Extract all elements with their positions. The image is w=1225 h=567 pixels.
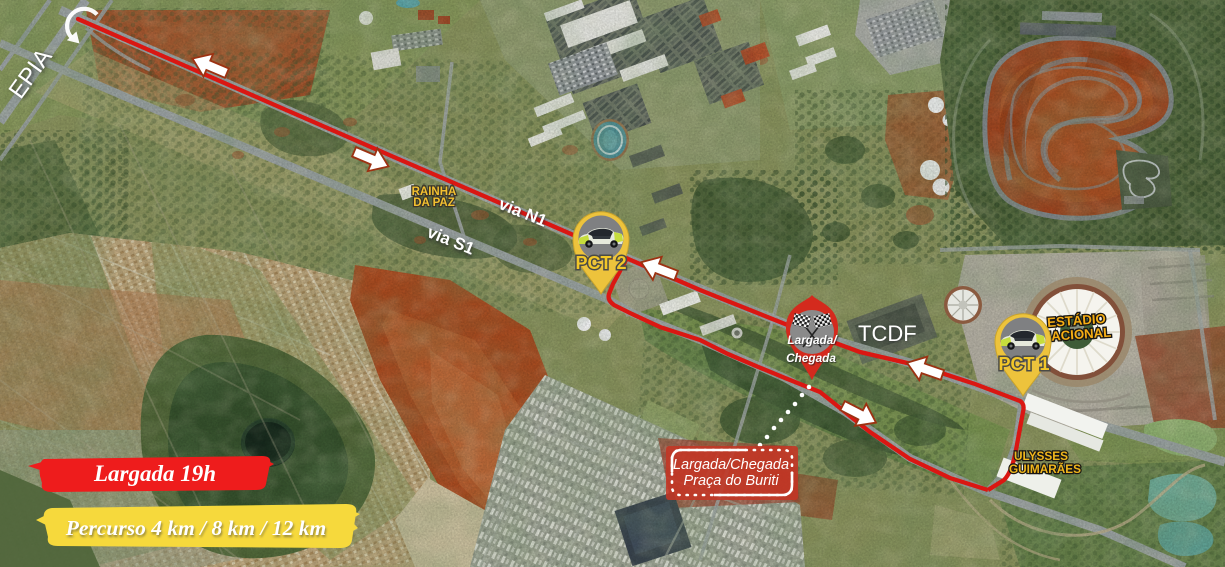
- svg-text:TCDF: TCDF: [858, 321, 917, 346]
- svg-text:ULYSSES: ULYSSES: [1014, 449, 1068, 463]
- svg-text:PCT 2: PCT 2: [575, 253, 626, 273]
- svg-text:Percurso 4 km / 8 km / 12 km: Percurso 4 km / 8 km / 12 km: [65, 516, 326, 540]
- svg-text:GUIMARÃES: GUIMARÃES: [1009, 462, 1081, 476]
- svg-text:Praça do Buriti: Praça do Buriti: [683, 473, 779, 489]
- svg-text:Largada 19h: Largada 19h: [93, 461, 216, 486]
- svg-text:Chegada: Chegada: [786, 351, 836, 365]
- svg-text:Largada/: Largada/: [787, 333, 838, 347]
- svg-text:Largada/Chegada: Largada/Chegada: [673, 457, 789, 473]
- svg-text:DA PAZ: DA PAZ: [413, 197, 455, 209]
- svg-text:PCT 1: PCT 1: [998, 354, 1049, 374]
